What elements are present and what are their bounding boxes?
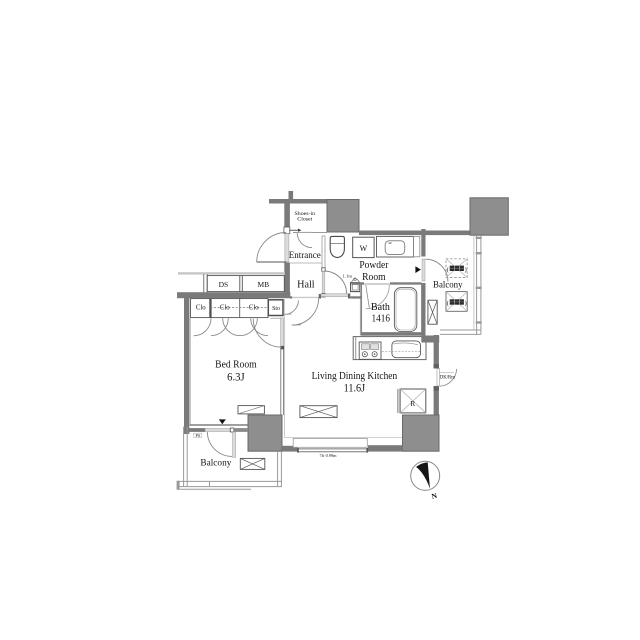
svg-text:Clo: Clo (220, 304, 230, 311)
svg-text:6.3J: 6.3J (227, 372, 245, 384)
svg-text:DS: DS (219, 280, 229, 289)
svg-text:Hall: Hall (297, 278, 315, 290)
svg-text:Clo: Clo (249, 304, 259, 311)
svg-text:Balcony: Balcony (200, 459, 231, 469)
svg-text:Closet: Closet (297, 217, 313, 223)
svg-text:Room: Room (362, 272, 386, 283)
svg-text:Balcony: Balcony (433, 281, 463, 291)
svg-text:DK/Rm: DK/Rm (440, 376, 455, 381)
svg-text:(: ( (447, 300, 449, 307)
svg-text:11.6J: 11.6J (344, 380, 366, 394)
svg-text:Clo: Clo (196, 304, 206, 311)
svg-text:7fr 0.99m: 7fr 0.99m (320, 453, 338, 458)
svg-text:(: ( (447, 266, 449, 273)
svg-text:1416: 1416 (372, 313, 391, 324)
svg-text:Entrance: Entrance (289, 250, 321, 261)
svg-text:): ) (465, 300, 467, 307)
svg-text:): ) (465, 266, 467, 273)
svg-text:PS: PS (195, 433, 200, 438)
svg-text:Powder: Powder (359, 260, 389, 271)
svg-text:Bath: Bath (371, 302, 390, 313)
svg-text:Bed Room: Bed Room (215, 359, 257, 370)
svg-text:MB: MB (257, 280, 269, 289)
svg-text:Sto: Sto (272, 306, 280, 312)
svg-text:W: W (360, 244, 368, 253)
svg-text:1.1m: 1.1m (343, 274, 353, 279)
svg-text:R: R (410, 399, 415, 408)
